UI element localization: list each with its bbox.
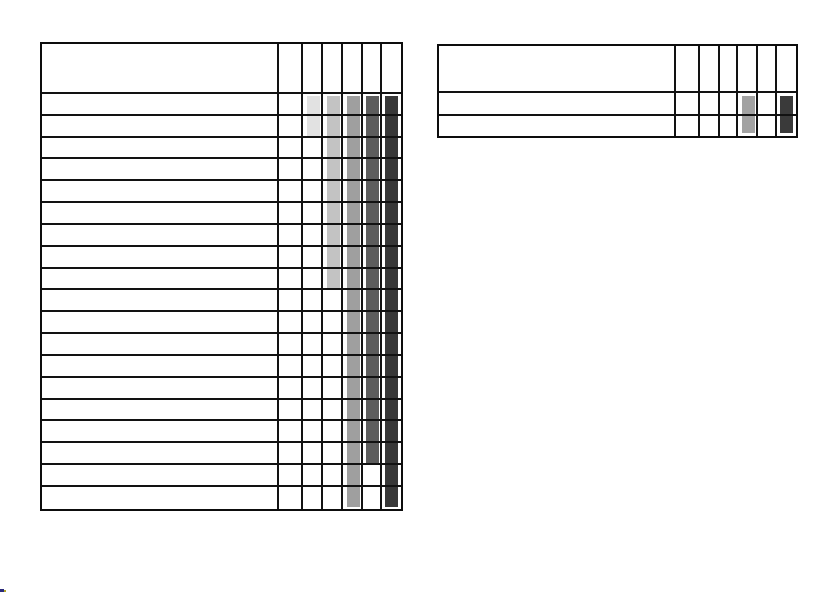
value-cell [738,116,758,136]
value-cell [363,334,382,356]
value-cell [700,93,720,116]
value-cell [303,225,323,247]
value-cell [363,138,382,160]
value-cell [382,356,401,378]
value-cell [323,181,343,203]
value-cell [343,225,363,247]
value-cell [343,203,363,225]
value-cell [279,203,303,225]
value-cell [323,138,343,160]
header-cell [439,46,676,93]
value-cell [303,356,323,378]
value-cell [323,247,343,269]
value-cell [323,465,343,487]
label-cell [42,290,279,312]
value-cell [279,269,303,291]
value-cell [363,465,382,487]
label-cell [42,159,279,181]
value-cell [382,116,401,138]
value-cell [382,400,401,422]
value-cell [363,94,382,116]
value-cell [279,116,303,138]
label-cell [42,269,279,291]
label-cell [42,225,279,247]
value-cell [343,378,363,400]
value-cell [323,290,343,312]
value-cell [382,421,401,443]
value-cell [279,225,303,247]
value-cell [303,181,323,203]
value-cell [363,312,382,334]
value-cell [343,312,363,334]
header-cell [777,46,796,93]
value-cell [323,116,343,138]
gantt-table-left [40,42,403,511]
value-cell [279,465,303,487]
value-cell [758,93,777,116]
value-cell [382,378,401,400]
value-cell [363,421,382,443]
value-cell [279,312,303,334]
value-cell [382,138,401,160]
value-cell [323,269,343,291]
value-cell [323,487,343,509]
value-cell [382,94,401,116]
value-cell [343,356,363,378]
value-cell [303,465,323,487]
value-cell [382,465,401,487]
value-cell [303,116,323,138]
header-cell [758,46,777,93]
value-cell [382,247,401,269]
value-cell [323,312,343,334]
value-cell [279,487,303,509]
header-cell [303,44,323,94]
value-cell [323,94,343,116]
label-cell [42,181,279,203]
gantt-table-right [437,44,798,138]
value-cell [343,334,363,356]
value-cell [343,181,363,203]
header-cell [382,44,401,94]
value-cell [279,247,303,269]
value-cell [279,443,303,465]
header-cell [363,44,382,94]
label-cell [42,400,279,422]
header-cell [700,46,720,93]
label-cell [42,443,279,465]
value-cell [323,159,343,181]
value-cell [343,269,363,291]
value-cell [279,421,303,443]
value-cell [303,269,323,291]
scan-artifact-yellow-dot [4,590,6,592]
value-cell [676,93,700,116]
value-cell [303,312,323,334]
label-cell [439,93,676,116]
value-cell [382,487,401,509]
value-cell [363,247,382,269]
gantt-grid-layer-right [439,46,796,136]
label-cell [42,465,279,487]
value-cell [303,400,323,422]
value-cell [738,93,758,116]
value-cell [303,138,323,160]
value-cell [700,116,720,136]
value-cell [363,225,382,247]
value-cell [363,356,382,378]
value-cell [343,94,363,116]
value-cell [279,159,303,181]
value-cell [343,159,363,181]
value-cell [363,378,382,400]
header-cell [738,46,758,93]
value-cell [382,269,401,291]
value-cell [303,487,323,509]
value-cell [363,203,382,225]
header-cell [42,44,279,94]
value-cell [323,400,343,422]
label-cell [42,203,279,225]
value-cell [303,378,323,400]
value-cell [343,138,363,160]
label-cell [42,312,279,334]
value-cell [363,181,382,203]
value-cell [303,290,323,312]
header-cell [343,44,363,94]
value-cell [777,116,796,136]
value-cell [343,247,363,269]
value-cell [343,290,363,312]
label-cell [42,356,279,378]
value-cell [303,203,323,225]
header-cell [279,44,303,94]
value-cell [363,159,382,181]
value-cell [279,378,303,400]
value-cell [363,443,382,465]
value-cell [363,400,382,422]
value-cell [382,225,401,247]
value-cell [363,487,382,509]
value-cell [382,181,401,203]
value-cell [758,116,777,136]
value-cell [279,290,303,312]
value-cell [323,443,343,465]
value-cell [303,159,323,181]
value-cell [382,443,401,465]
value-cell [382,334,401,356]
value-cell [343,400,363,422]
gantt-grid-layer-left [42,44,401,509]
value-cell [323,356,343,378]
value-cell [382,159,401,181]
value-cell [279,356,303,378]
value-cell [382,290,401,312]
value-cell [343,465,363,487]
value-cell [343,421,363,443]
label-cell [42,116,279,138]
value-cell [323,225,343,247]
value-cell [303,334,323,356]
value-cell [343,443,363,465]
value-cell [279,334,303,356]
value-cell [343,116,363,138]
header-cell [323,44,343,94]
scanned-page [0,0,840,596]
value-cell [323,203,343,225]
value-cell [323,334,343,356]
value-cell [382,312,401,334]
label-cell [42,334,279,356]
value-cell [279,181,303,203]
value-cell [303,421,323,443]
value-cell [303,443,323,465]
value-cell [382,203,401,225]
value-cell [303,247,323,269]
value-cell [279,94,303,116]
value-cell [720,116,738,136]
value-cell [343,487,363,509]
value-cell [279,138,303,160]
value-cell [323,378,343,400]
label-cell [42,247,279,269]
label-cell [42,421,279,443]
label-cell [439,116,676,136]
value-cell [676,116,700,136]
value-cell [720,93,738,116]
value-cell [777,93,796,116]
value-cell [363,290,382,312]
value-cell [279,400,303,422]
value-cell [363,269,382,291]
label-cell [42,138,279,160]
value-cell [363,116,382,138]
label-cell [42,378,279,400]
scan-artifact-mark [0,589,6,592]
header-cell [676,46,700,93]
header-cell [720,46,738,93]
label-cell [42,94,279,116]
value-cell [303,94,323,116]
value-cell [323,421,343,443]
label-cell [42,487,279,509]
